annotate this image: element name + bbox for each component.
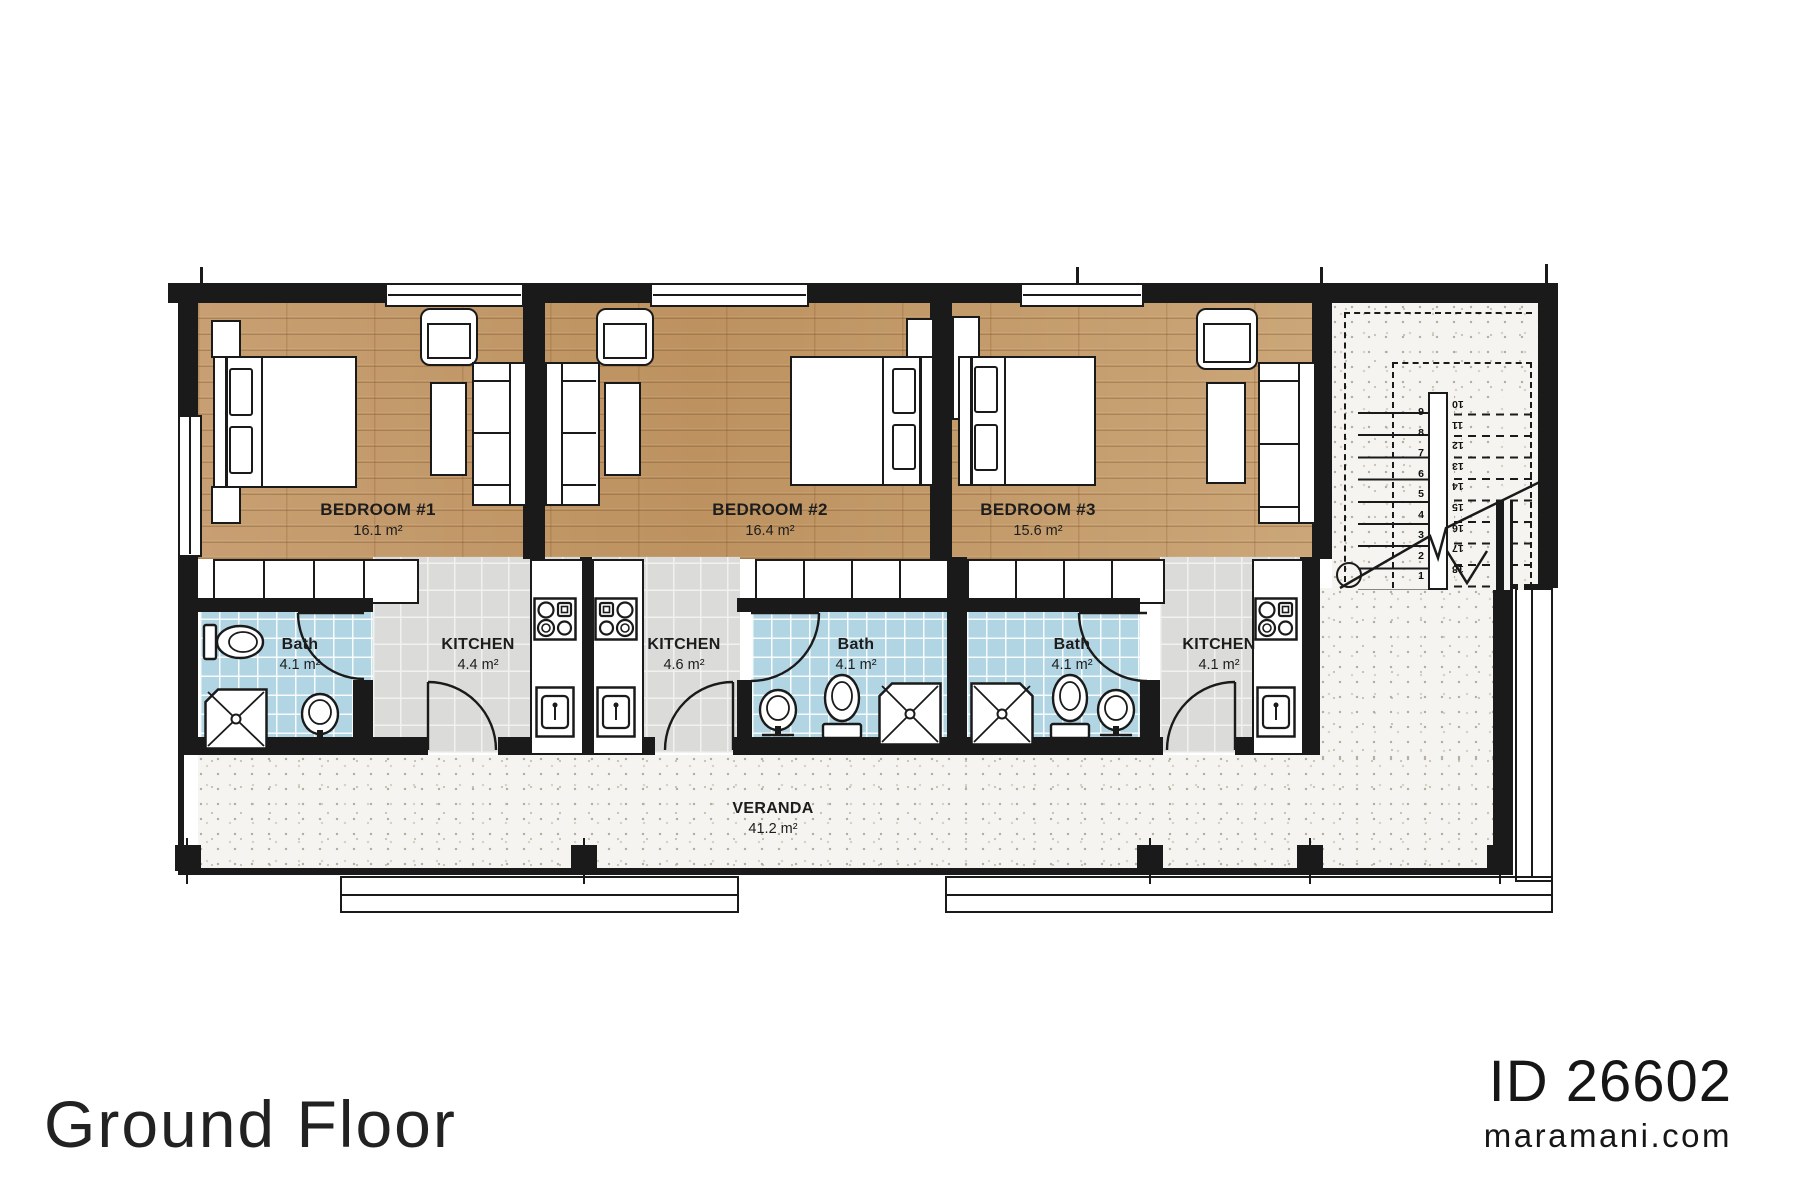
room-label-bedroom1: BEDROOM #1 16.1 m²: [320, 500, 435, 539]
room-label-kitchen3: KITCHEN 4.1 m²: [1182, 636, 1255, 673]
coffee-table: [604, 382, 641, 476]
pillow: [892, 368, 916, 414]
washbasin-icon: [298, 690, 342, 742]
veranda-column: [175, 845, 201, 871]
room-label-kitchen1: KITCHEN 4.4 m²: [441, 636, 514, 673]
stair-step-number: 10: [1452, 398, 1464, 410]
stair-step-number: 6: [1418, 468, 1424, 480]
stair-step-number: 16: [1452, 522, 1464, 534]
room-label-bedroom2: BEDROOM #2 16.4 m²: [712, 500, 827, 539]
bed: [790, 356, 934, 486]
dimension-tick: [1076, 267, 1079, 283]
dimension-tick: [200, 267, 203, 283]
side-step-line: [1531, 588, 1533, 878]
window: [178, 415, 202, 557]
veranda-floor-right-wing: [1320, 588, 1493, 758]
side-step: [1515, 588, 1553, 882]
floor-plan-sheet: 123456789 101112131415161718: [0, 0, 1800, 1200]
stair-step-number: 13: [1452, 460, 1464, 472]
toilet-icon: [1048, 672, 1092, 744]
pillow: [974, 366, 998, 413]
stair-step-number: 7: [1418, 447, 1424, 459]
stair-step-number: 4: [1418, 509, 1424, 521]
shower-icon: [878, 682, 942, 746]
sink-icon: [596, 686, 636, 738]
bed: [958, 356, 1096, 486]
armchair: [1196, 308, 1258, 370]
stair-down-numbers: 123456789: [1394, 402, 1426, 578]
stair-step-number: 8: [1418, 427, 1424, 439]
room-label-bath3: Bath 4.1 m²: [1051, 636, 1092, 673]
wall-bath3-right: [1140, 680, 1160, 755]
veranda-column: [571, 845, 597, 871]
stair-step-number: 14: [1452, 480, 1464, 492]
stair-step-number: 11: [1452, 419, 1463, 431]
stair-step-number: 12: [1452, 439, 1464, 451]
plan-id: ID 26602: [1390, 1048, 1732, 1115]
veranda-column: [1297, 845, 1323, 871]
room-label-bath1: Bath 4.1 m²: [279, 636, 320, 673]
toilet-icon: [202, 620, 268, 664]
dimension-tick: [1545, 264, 1548, 283]
stair-step-number: 1: [1418, 570, 1424, 582]
stair-step-number: 15: [1452, 501, 1464, 513]
washbasin-icon: [756, 686, 800, 738]
window: [650, 283, 809, 307]
coffee-table: [1206, 382, 1246, 484]
stair-up-numbers: 101112131415161718: [1450, 396, 1478, 572]
room-label-bedroom3: BEDROOM #3 15.6 m²: [980, 500, 1095, 539]
entry-step: [340, 876, 739, 913]
stair-step-number: 3: [1418, 529, 1424, 541]
plan-branding: ID 26602 maramani.com: [1390, 1048, 1732, 1155]
wall-bath2-bath3: [947, 557, 967, 755]
veranda-column: [1137, 845, 1163, 871]
sofa: [472, 362, 527, 506]
window: [385, 283, 524, 307]
door-kitchen2: [659, 678, 735, 752]
sink-icon: [1256, 686, 1296, 738]
armchair: [420, 308, 478, 366]
pillow: [974, 424, 998, 471]
washbasin-icon: [1094, 686, 1138, 738]
floor-title: Ground Floor: [44, 1086, 457, 1162]
dimension-tick: [1320, 267, 1323, 283]
pillow: [892, 424, 916, 470]
toilet-icon: [820, 672, 864, 744]
door-bath2: [748, 610, 822, 684]
room-label-veranda: VERANDA 41.2 m²: [732, 800, 813, 837]
stair-step-number: 5: [1418, 488, 1424, 500]
room-label-bath2: Bath 4.1 m²: [835, 636, 876, 673]
stove-icon: [594, 597, 638, 641]
pillow: [229, 368, 253, 416]
sink-icon: [535, 686, 575, 738]
coffee-table: [430, 382, 467, 476]
pillow: [229, 426, 253, 474]
entry-step: [945, 876, 1553, 913]
room-label-kitchen2: KITCHEN 4.6 m²: [647, 636, 720, 673]
nightstand: [211, 486, 241, 524]
bed: [213, 356, 357, 488]
nightstand: [211, 320, 241, 358]
wall-bath1-right: [353, 680, 373, 755]
stove-icon: [1254, 597, 1298, 641]
window: [1020, 283, 1144, 307]
door-kitchen1: [426, 678, 500, 752]
armchair: [596, 308, 654, 366]
stove-icon: [533, 597, 577, 641]
veranda-column: [1487, 845, 1513, 871]
stair-step-number: 18: [1452, 563, 1464, 575]
wall-bath2-left: [737, 680, 752, 755]
stair-step-number: 17: [1452, 542, 1464, 554]
shower-icon: [970, 682, 1034, 746]
sofa: [545, 362, 600, 506]
website: maramani.com: [1390, 1117, 1732, 1155]
door-kitchen3: [1161, 678, 1237, 752]
stair-start-marker: [1336, 562, 1362, 588]
shower-icon: [204, 688, 268, 750]
stair-step-number: 9: [1418, 406, 1424, 418]
nightstand: [906, 318, 934, 358]
stair-step-number: 2: [1418, 550, 1424, 562]
sofa: [1258, 362, 1316, 524]
